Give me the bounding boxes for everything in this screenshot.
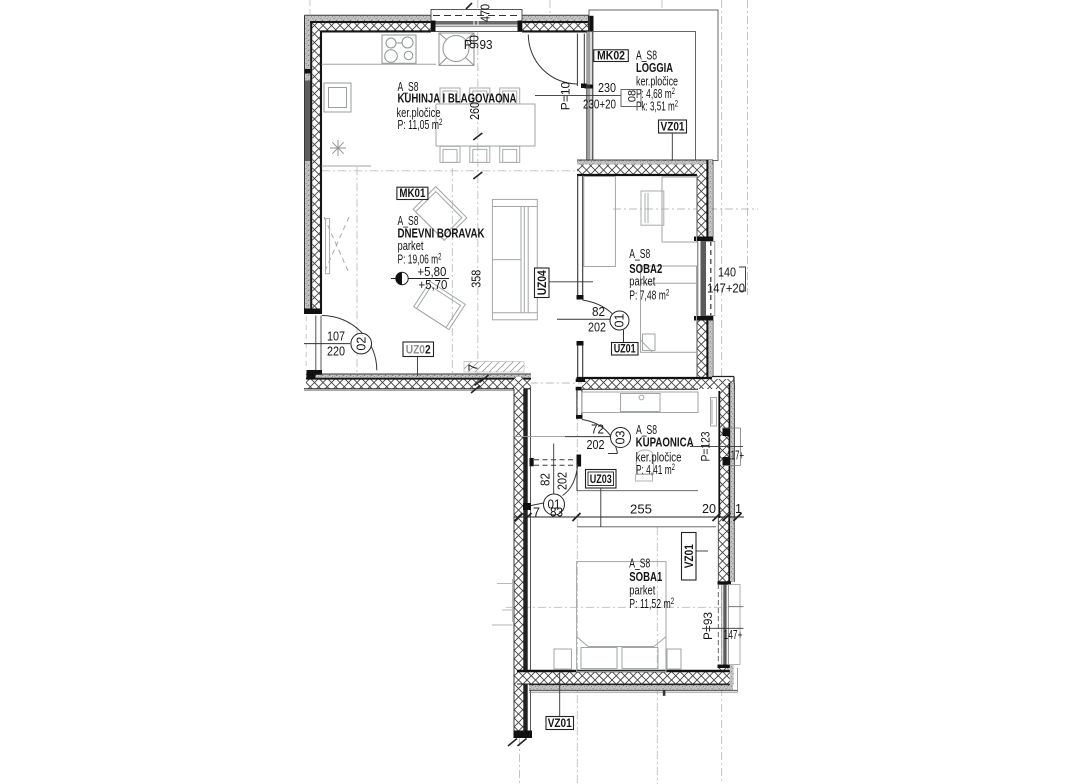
svg-text:117+: 117+ <box>727 449 744 463</box>
svg-text:VZ01: VZ01 <box>548 718 573 730</box>
svg-text:1: 1 <box>735 502 742 516</box>
svg-text:LOGGIA: LOGGIA <box>636 61 673 75</box>
svg-text:UZ02: UZ02 <box>406 345 431 357</box>
svg-text:P=10: P=10 <box>559 81 573 110</box>
svg-text:7: 7 <box>467 364 481 371</box>
svg-text:parket: parket <box>629 275 655 289</box>
svg-text:UZ03: UZ03 <box>590 474 612 486</box>
svg-text:220: 220 <box>327 345 345 359</box>
svg-text:+5,70: +5,70 <box>418 278 447 292</box>
svg-text:72: 72 <box>591 422 604 436</box>
svg-text:260: 260 <box>468 102 482 120</box>
svg-text:P: 11,52 m2: P: 11,52 m2 <box>629 596 674 611</box>
svg-text:107: 107 <box>327 329 345 343</box>
svg-text:MK02: MK02 <box>597 50 625 62</box>
svg-text:82: 82 <box>539 473 553 486</box>
svg-text:SOBA1: SOBA1 <box>629 570 662 584</box>
svg-text:20: 20 <box>702 502 716 516</box>
svg-text:+5,80: +5,80 <box>417 265 446 279</box>
svg-text:parket: parket <box>629 583 655 597</box>
svg-text:VZ01: VZ01 <box>684 544 696 569</box>
svg-text:255: 255 <box>630 503 652 517</box>
svg-text:P: 11,05 m2: P: 11,05 m2 <box>398 117 443 132</box>
svg-text:KUHINJA I BLAGOVAONA: KUHINJA I BLAGOVAONA <box>398 92 517 106</box>
svg-text:A_S8: A_S8 <box>629 247 650 261</box>
svg-text:Pk: 3,51 m2: Pk: 3,51 m2 <box>636 99 678 114</box>
svg-text:VZ01: VZ01 <box>661 122 686 134</box>
svg-text:03: 03 <box>614 431 628 445</box>
svg-text:UZ04: UZ04 <box>537 270 549 296</box>
svg-text:01: 01 <box>613 314 627 328</box>
svg-text:202: 202 <box>588 321 606 335</box>
svg-text:470: 470 <box>479 4 493 22</box>
svg-text:230: 230 <box>598 81 616 95</box>
svg-text:P: 4,41 m2: P: 4,41 m2 <box>636 462 675 477</box>
svg-text:MK01: MK01 <box>399 188 426 200</box>
svg-text:230+20: 230+20 <box>583 98 616 112</box>
svg-text:147+20: 147+20 <box>707 282 745 296</box>
svg-text:P: 7,48 m2: P: 7,48 m2 <box>629 288 669 303</box>
svg-text:P=123: P=123 <box>699 431 713 461</box>
svg-text:parket: parket <box>398 239 424 253</box>
svg-text:358: 358 <box>470 270 484 288</box>
svg-text:02: 02 <box>354 337 368 351</box>
svg-text:08: 08 <box>627 90 639 102</box>
svg-text:KUPAONICA: KUPAONICA <box>636 436 694 450</box>
svg-text:82: 82 <box>592 305 605 319</box>
svg-text:UZ01: UZ01 <box>614 344 636 356</box>
svg-text:202: 202 <box>556 472 570 490</box>
svg-text:202: 202 <box>587 438 605 452</box>
svg-text:147+: 147+ <box>724 628 743 642</box>
svg-text:P=93: P=93 <box>701 612 715 640</box>
svg-text:93: 93 <box>480 38 493 52</box>
svg-text:140: 140 <box>718 266 736 280</box>
svg-text:A_S8: A_S8 <box>629 557 650 571</box>
